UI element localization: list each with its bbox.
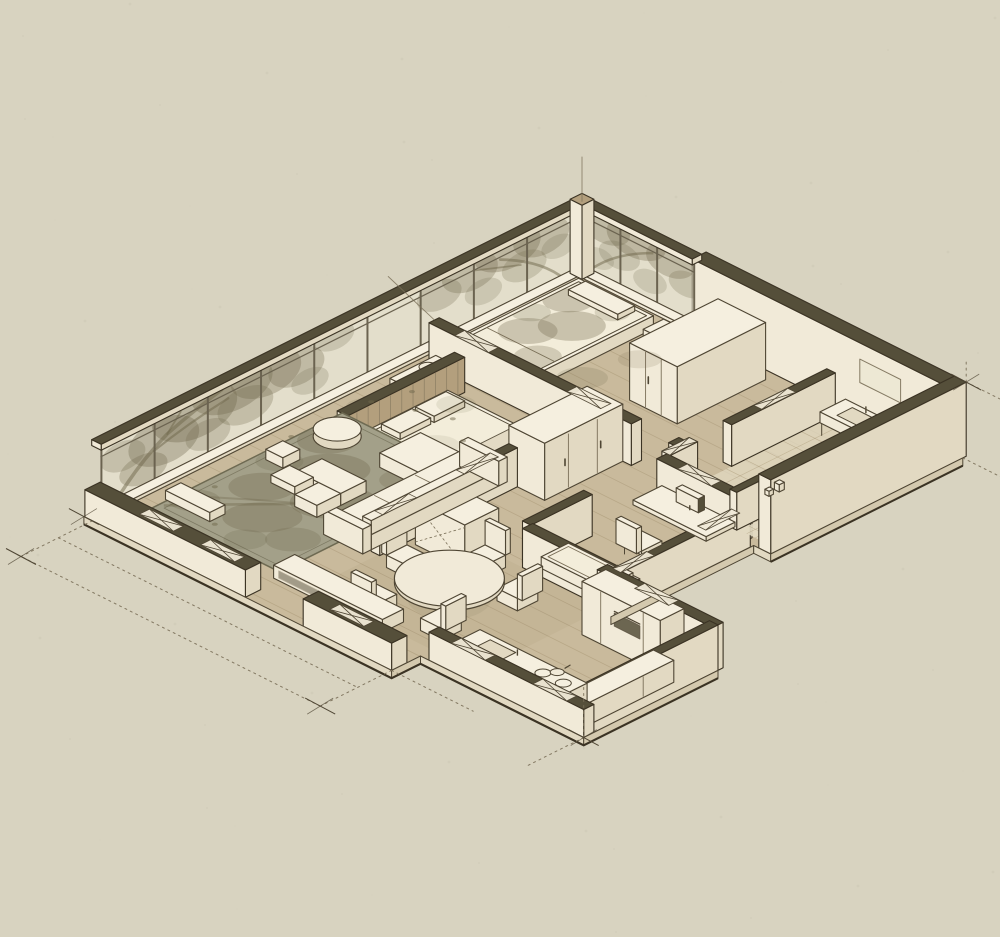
ledge-bottle-1 [774, 480, 784, 492]
corner-column [570, 193, 594, 279]
partition-bedrooms-se-face [631, 419, 641, 466]
corner-column-se-face [582, 199, 594, 279]
corridor-wall-a-sw-face [723, 421, 732, 467]
sofa-arm-north-se-face [499, 457, 508, 486]
sofa-arm-south-se-face [363, 525, 372, 554]
dining-chair-4-back-sw-face [441, 604, 446, 631]
dining-chair-3-back-sw-face [517, 574, 522, 601]
se-exterior-wall-sw-face [759, 474, 771, 554]
ledge-bottle-2 [765, 487, 774, 496]
pouf [313, 417, 361, 449]
dining-chair-2-back-se-face [506, 528, 511, 555]
sketch-canvas [0, 0, 1000, 937]
isometric-floor-plan-sketch [0, 0, 1000, 937]
desk-chair-back-se-face [636, 526, 641, 553]
corner-column-sw-face [570, 199, 582, 279]
